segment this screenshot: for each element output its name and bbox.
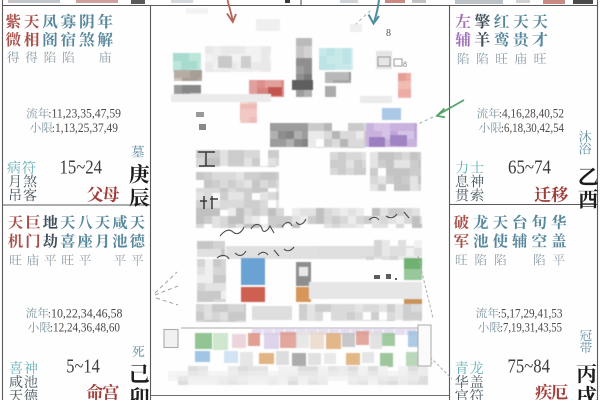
svg-text:75~84: 75~84 — [508, 356, 551, 378]
svg-text:12,24,36,48,60: 12,24,36,48,60 — [53, 321, 120, 335]
svg-text:15~24: 15~24 — [60, 157, 103, 179]
svg-text:5,17,29,41,53: 5,17,29,41,53 — [501, 306, 563, 320]
svg-text:7,19,31,43,55: 7,19,31,43,55 — [503, 321, 562, 335]
svg-text:8: 8 — [386, 28, 391, 39]
svg-text:10,22,34,46,58: 10,22,34,46,58 — [51, 306, 123, 320]
svg-text:8: 8 — [403, 60, 407, 69]
svg-text:11,23,35,47,59: 11,23,35,47,59 — [52, 107, 122, 121]
svg-text:4,16,28,40,52: 4,16,28,40,52 — [502, 107, 564, 121]
svg-text:5~14: 5~14 — [66, 356, 100, 378]
svg-text:1,13,25,37,49: 1,13,25,37,49 — [55, 121, 118, 135]
svg-text:65~74: 65~74 — [508, 157, 551, 179]
svg-text:6,18,30,42,54: 6,18,30,42,54 — [504, 121, 564, 135]
